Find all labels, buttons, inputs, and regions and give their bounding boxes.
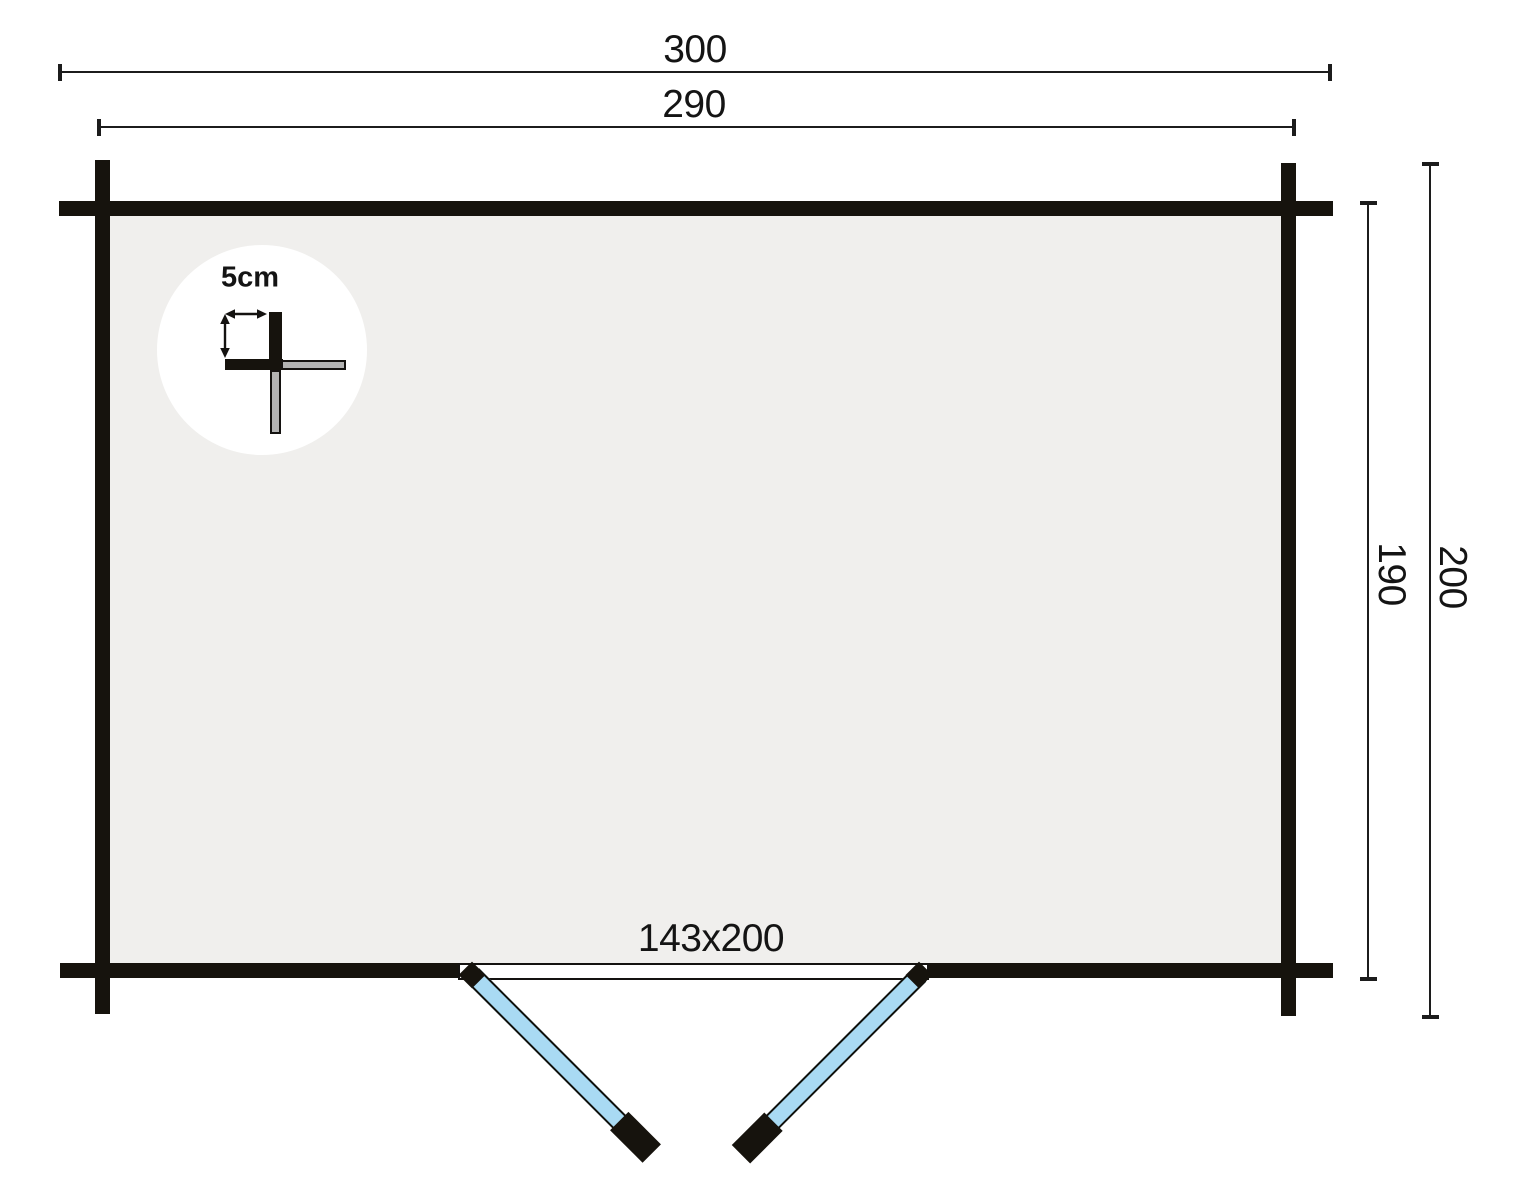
dimension-tick bbox=[1292, 119, 1296, 136]
overall-width-dimension-line bbox=[59, 71, 1331, 73]
overall-width-label: 300 bbox=[663, 28, 727, 72]
wall-left bbox=[95, 160, 110, 1014]
detail-log-right bbox=[281, 360, 346, 370]
dimension-tick bbox=[1360, 201, 1377, 205]
dimension-tick bbox=[1422, 1015, 1439, 1019]
dimension-tick bbox=[58, 64, 62, 81]
wall-top bbox=[59, 201, 1333, 216]
floor-plan-canvas: 300 290 190 200 5cm 143 bbox=[0, 0, 1530, 1188]
wall-bottom-right-segment bbox=[927, 963, 1333, 978]
door-left-leaf bbox=[466, 968, 658, 1160]
wall-bottom-left-segment bbox=[60, 963, 458, 978]
door-threshold bbox=[458, 963, 929, 980]
dimension-tick bbox=[1328, 64, 1332, 81]
door-left-panel bbox=[466, 968, 631, 1133]
dimension-tick bbox=[97, 119, 101, 136]
dimension-tick bbox=[1422, 162, 1439, 166]
detail-log-left bbox=[225, 359, 283, 370]
wall-thickness-label: 5cm bbox=[221, 262, 279, 295]
door-right-panel bbox=[761, 968, 926, 1133]
detail-log-bottom bbox=[270, 370, 281, 434]
overall-depth-label: 200 bbox=[1430, 545, 1474, 609]
door-size-label: 143x200 bbox=[638, 917, 784, 961]
shell-width-dimension-line bbox=[98, 126, 1295, 128]
dimension-tick bbox=[1360, 977, 1377, 981]
shell-depth-label: 190 bbox=[1369, 542, 1413, 606]
height-arrow-icon bbox=[218, 313, 232, 359]
shell-width-label: 290 bbox=[662, 83, 726, 127]
door-right-leaf bbox=[733, 968, 925, 1160]
wall-right bbox=[1281, 163, 1296, 1016]
